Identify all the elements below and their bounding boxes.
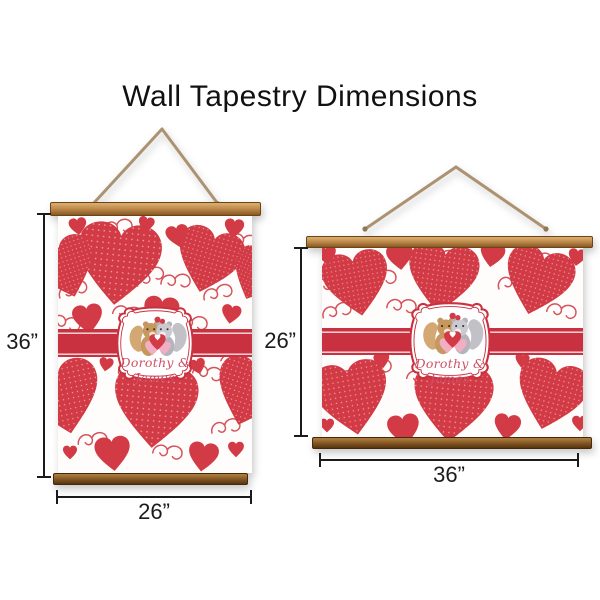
hanging-rope xyxy=(360,162,552,234)
landscape-width-dimension-label: 36” xyxy=(409,464,489,486)
landscape-height-bottom-tick xyxy=(294,435,308,437)
landscape-height-top-tick xyxy=(294,247,308,249)
top-wooden-dowel xyxy=(306,236,593,248)
landscape-width-left-tick xyxy=(319,453,321,467)
landscape-width-dimension-line xyxy=(320,459,578,461)
landscape-width-right-tick xyxy=(577,453,579,467)
bottom-wooden-dowel xyxy=(312,437,592,449)
plate-name-text: Dorothy & James xyxy=(406,356,494,386)
landscape-height-dimension-label: 26” xyxy=(258,330,296,352)
landscape-height-dimension-line xyxy=(300,248,302,437)
